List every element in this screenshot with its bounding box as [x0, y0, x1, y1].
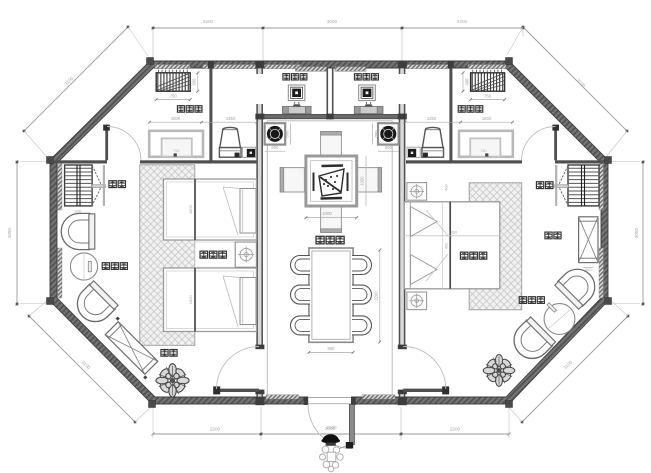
- svg-text:1800: 1800: [188, 295, 193, 305]
- svg-text:3050: 3050: [634, 227, 639, 238]
- svg-text:1350: 1350: [226, 116, 236, 121]
- svg-text:600: 600: [271, 145, 279, 150]
- svg-text:750: 750: [481, 149, 487, 153]
- svg-text:2200: 2200: [373, 291, 378, 301]
- svg-text:1800: 1800: [188, 204, 193, 214]
- svg-text:750: 750: [174, 149, 180, 153]
- svg-text:600: 600: [285, 130, 290, 138]
- svg-text:3050: 3050: [7, 227, 12, 238]
- svg-text:2200: 2200: [457, 19, 468, 24]
- svg-text:1800: 1800: [448, 229, 458, 234]
- svg-text:1500: 1500: [171, 116, 181, 121]
- svg-text:2200: 2200: [210, 427, 221, 432]
- svg-text:400: 400: [444, 242, 449, 249]
- svg-text:1000: 1000: [360, 176, 365, 186]
- svg-text:1000: 1000: [322, 211, 332, 216]
- svg-text:900: 900: [464, 79, 469, 87]
- svg-text:2200: 2200: [203, 19, 214, 24]
- svg-text:750: 750: [484, 93, 492, 98]
- svg-text:900: 900: [192, 78, 197, 86]
- svg-text:600: 600: [328, 346, 336, 351]
- svg-text:2000: 2000: [326, 425, 337, 430]
- svg-text:400: 400: [444, 183, 449, 190]
- svg-text:600: 600: [385, 145, 393, 150]
- svg-text:600: 600: [374, 131, 379, 139]
- svg-text:2200: 2200: [450, 427, 461, 432]
- svg-text:3000: 3000: [327, 19, 338, 24]
- svg-text:750: 750: [170, 93, 178, 98]
- svg-text:1500: 1500: [482, 116, 492, 121]
- svg-text:1350: 1350: [427, 116, 437, 121]
